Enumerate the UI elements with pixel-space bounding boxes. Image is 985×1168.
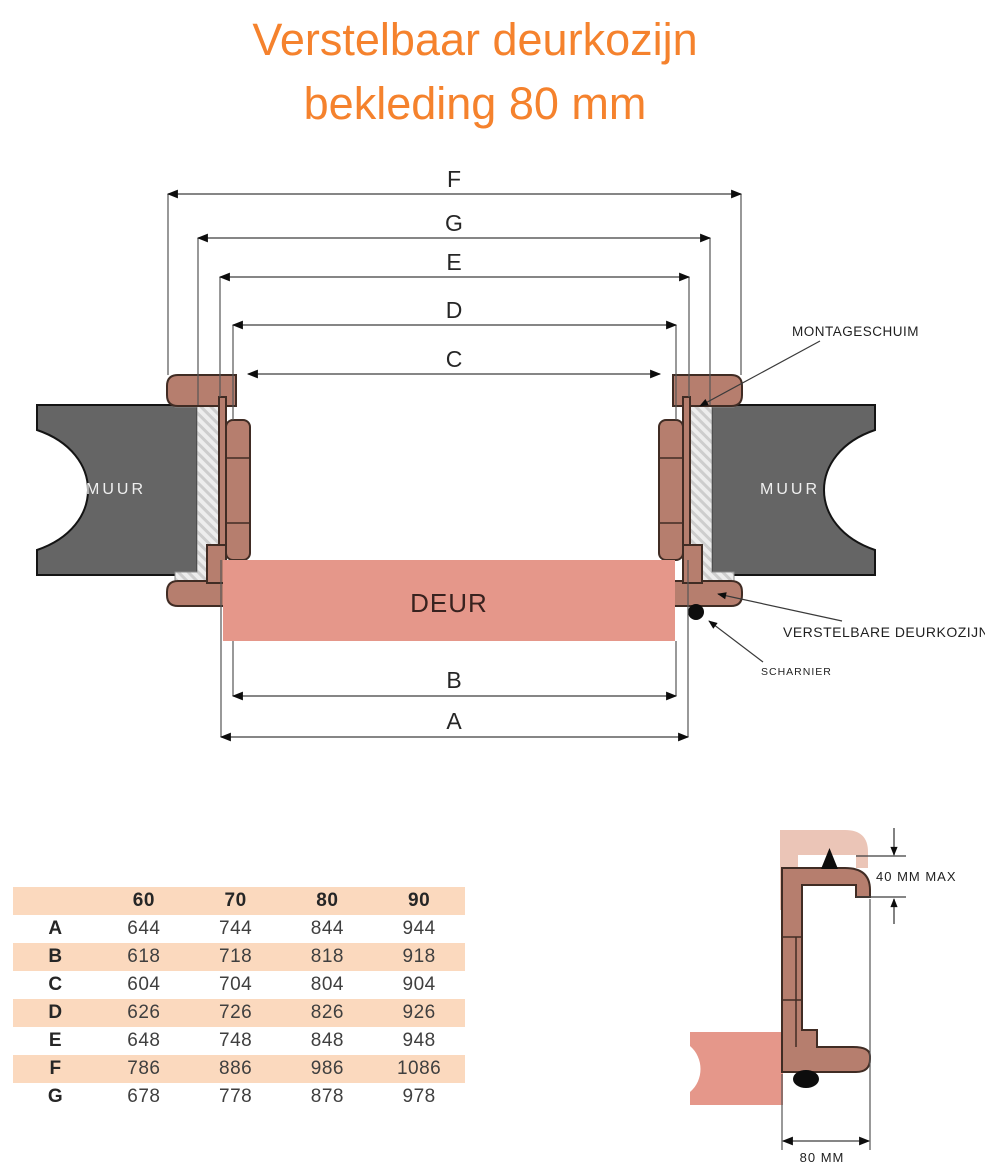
row-label: D xyxy=(13,999,98,1027)
cladding-width-label: 80 MM xyxy=(800,1150,845,1165)
dim-label-C: C xyxy=(446,346,463,372)
detail-hinge-dot xyxy=(793,1070,819,1088)
cell: 648 xyxy=(98,1027,190,1055)
cell: 704 xyxy=(190,971,282,999)
cell: 1086 xyxy=(373,1055,465,1083)
table-header-80: 80 xyxy=(282,887,374,915)
table-header-60: 60 xyxy=(98,887,190,915)
cell: 626 xyxy=(98,999,190,1027)
left-frame-adjustable-part xyxy=(226,420,250,560)
row-label: A xyxy=(13,915,98,943)
row-label: F xyxy=(13,1055,98,1083)
table-header-70: 70 xyxy=(190,887,282,915)
cell: 918 xyxy=(373,943,465,971)
cell: 904 xyxy=(373,971,465,999)
cell: 786 xyxy=(98,1055,190,1083)
cell: 826 xyxy=(282,999,374,1027)
row-label: C xyxy=(13,971,98,999)
cell: 818 xyxy=(282,943,374,971)
table-row: A 644 744 844 944 xyxy=(13,915,465,943)
cell: 644 xyxy=(98,915,190,943)
cell: 978 xyxy=(373,1083,465,1111)
right-frame-adjustable-part xyxy=(659,420,683,560)
cell: 748 xyxy=(190,1027,282,1055)
right-frame-stop xyxy=(683,545,702,583)
hinge-dot xyxy=(688,604,704,620)
scharnier-leader xyxy=(709,621,763,662)
cell: 718 xyxy=(190,943,282,971)
cell: 778 xyxy=(190,1083,282,1111)
cell: 926 xyxy=(373,999,465,1027)
table-header-row: 60 70 80 90 xyxy=(13,887,465,915)
cell: 726 xyxy=(190,999,282,1027)
row-label: G xyxy=(13,1083,98,1111)
cell: 844 xyxy=(282,915,374,943)
right-wall-label: MUUR xyxy=(760,481,820,498)
cell: 744 xyxy=(190,915,282,943)
table-header-empty xyxy=(13,887,98,915)
cell: 604 xyxy=(98,971,190,999)
cell: 948 xyxy=(373,1027,465,1055)
montageschuim-leader xyxy=(700,341,820,406)
cell: 848 xyxy=(282,1027,374,1055)
dimension-table: 60 70 80 90 A 644 744 844 944 B 618 718 … xyxy=(13,887,465,1111)
detail-door xyxy=(690,1032,783,1105)
scharnier-label: SCHARNIER xyxy=(761,666,832,678)
cell: 886 xyxy=(190,1055,282,1083)
verstelbare-leader xyxy=(718,594,842,621)
cell: 986 xyxy=(282,1055,374,1083)
table-row: G 678 778 878 978 xyxy=(13,1083,465,1111)
table-row: E 648 748 848 948 xyxy=(13,1027,465,1055)
montageschuim-label: MONTAGESCHUIM xyxy=(792,324,919,339)
dim-label-B: B xyxy=(446,667,461,693)
dim-label-E: E xyxy=(446,249,461,275)
row-label: E xyxy=(13,1027,98,1055)
right-frame-bottom-flange xyxy=(673,581,742,606)
dim-label-D: D xyxy=(446,297,463,323)
cell: 618 xyxy=(98,943,190,971)
dim-label-G: G xyxy=(445,210,463,236)
dim-label-F: F xyxy=(447,166,461,192)
verstelbare-deurkozijn-label: VERSTELBARE DEURKOZIJN xyxy=(783,624,985,640)
row-label: B xyxy=(13,943,98,971)
adjust-range-label: 40 MM MAX xyxy=(876,869,957,884)
cell: 678 xyxy=(98,1083,190,1111)
table-header-90: 90 xyxy=(373,887,465,915)
cell: 804 xyxy=(282,971,374,999)
detail-frame-profile xyxy=(782,868,870,1072)
table-row: C 604 704 804 904 xyxy=(13,971,465,999)
table-row: F 786 886 986 1086 xyxy=(13,1055,465,1083)
table-row: D 626 726 826 926 xyxy=(13,999,465,1027)
door-label: DEUR xyxy=(410,588,488,618)
cell: 944 xyxy=(373,915,465,943)
left-wall-label: MUUR xyxy=(86,481,146,498)
table-row: B 618 718 818 918 xyxy=(13,943,465,971)
dim-label-A: A xyxy=(446,708,462,734)
cell: 878 xyxy=(282,1083,374,1111)
